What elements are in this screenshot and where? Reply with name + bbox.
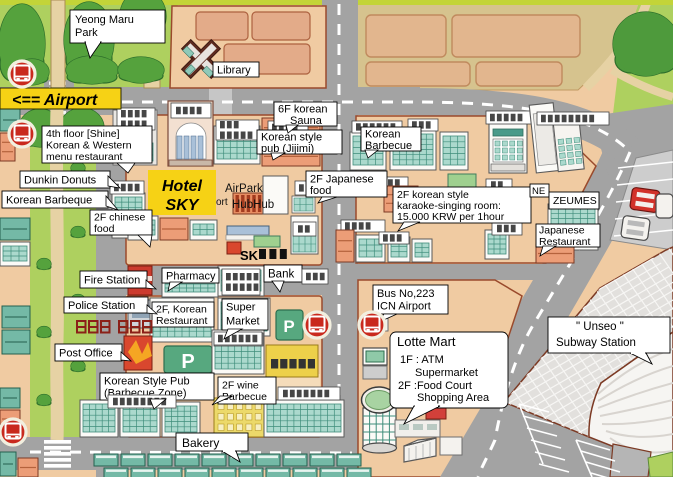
svg-text:P: P [181,351,194,373]
svg-text:SK: SK [240,248,259,263]
svg-text:Bus No,223: Bus No,223 [377,288,434,300]
svg-text:Japanese: Japanese [539,225,585,237]
svg-text:" Unseo ": " Unseo " [576,321,624,333]
svg-text:Dunkin Donuts: Dunkin Donuts [24,174,97,186]
svg-text:6F korean: 6F korean [278,104,328,116]
svg-text:AirPark: AirPark [225,183,263,195]
svg-text:ICN Airport: ICN Airport [377,301,431,313]
svg-text:4th floor [Shine]: 4th floor [Shine] [46,128,120,140]
svg-text:Pharmacy: Pharmacy [166,270,216,282]
svg-text:Shopping Area: Shopping Area [417,392,490,404]
svg-text:menu restaurant: menu restaurant [46,151,123,163]
svg-text:Korean Style Pub: Korean Style Pub [104,376,190,388]
svg-text:Supermarket: Supermarket [415,367,478,379]
svg-text:Korean style: Korean style [261,132,322,144]
svg-text:Police Station: Police Station [68,300,135,312]
svg-text:Subway Station: Subway Station [556,337,636,349]
svg-text:Market: Market [226,316,260,328]
svg-text:HubHub: HubHub [232,199,274,211]
svg-text:Super: Super [226,302,256,314]
svg-text:Korean: Korean [365,129,400,141]
svg-text:NE: NE [532,186,545,197]
svg-text:<== Airport: <== Airport [12,92,98,109]
svg-text:food: food [94,223,115,235]
svg-text:Lotte Mart: Lotte Mart [397,334,456,349]
svg-text:2F, Korean: 2F, Korean [156,304,207,316]
svg-text:2F Japanese: 2F Japanese [310,174,374,186]
svg-text:SKY: SKY [166,197,200,214]
svg-text:Restaurant: Restaurant [156,315,207,327]
svg-text:Korean & Western: Korean & Western [46,139,132,151]
svg-text:ZEUMES: ZEUMES [553,195,597,207]
svg-text:Bakery: Bakery [182,436,219,450]
svg-text:P: P [283,317,294,336]
svg-text:pub (Jijimi): pub (Jijimi) [261,143,314,155]
svg-text:Park: Park [75,27,98,39]
svg-text:1F : ATM: 1F : ATM [400,354,444,366]
svg-text:Hotel: Hotel [162,178,203,195]
svg-text:15.000 KRW per 1hour: 15.000 KRW per 1hour [397,211,505,223]
svg-text:2F chinese: 2F chinese [94,212,146,224]
svg-text:2F :Food Court: 2F :Food Court [398,380,472,392]
svg-text:Library: Library [217,64,251,76]
svg-text:ort: ort [216,197,228,208]
svg-text:Korean Barbeque: Korean Barbeque [6,194,92,206]
svg-text:food: food [310,185,331,197]
svg-text:Post Office: Post Office [59,347,113,359]
svg-text:2F wine: 2F wine [222,380,259,392]
svg-text:Fire Station: Fire Station [84,274,140,286]
svg-text:Bank: Bank [268,268,294,280]
svg-text:Yeong Maru: Yeong Maru [75,14,134,26]
